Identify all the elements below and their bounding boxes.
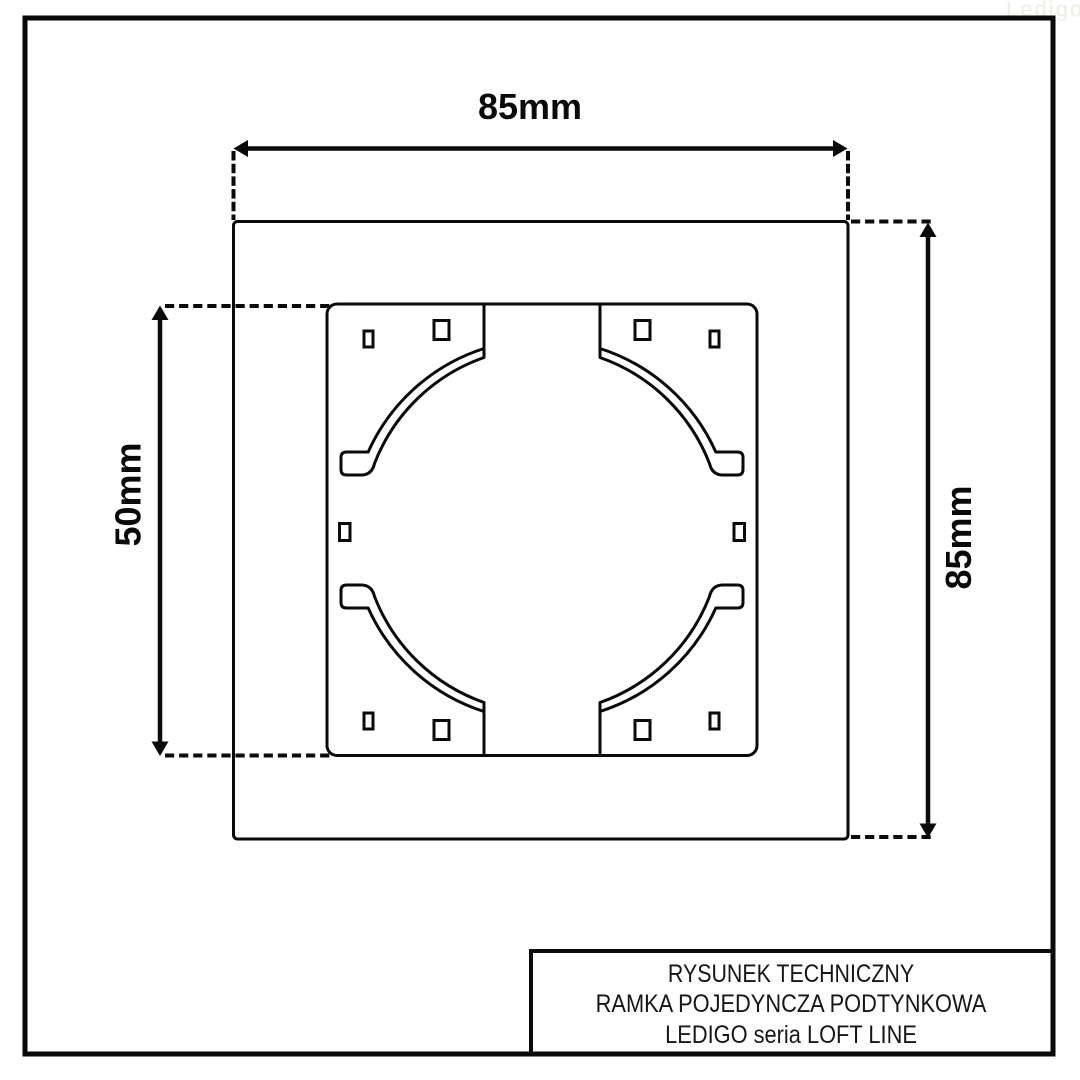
svg-text:85mm: 85mm (938, 485, 979, 589)
svg-text:50mm: 50mm (108, 442, 149, 546)
svg-text:RYSUNEK TECHNICZNY: RYSUNEK TECHNICZNY (668, 959, 914, 987)
svg-text:RAMKA POJEDYNCZA PODTYNKOWA: RAMKA POJEDYNCZA PODTYNKOWA (596, 990, 987, 1018)
svg-text:85mm: 85mm (478, 86, 582, 127)
svg-text:LEDIGO seria LOFT LINE: LEDIGO seria LOFT LINE (665, 1021, 917, 1049)
